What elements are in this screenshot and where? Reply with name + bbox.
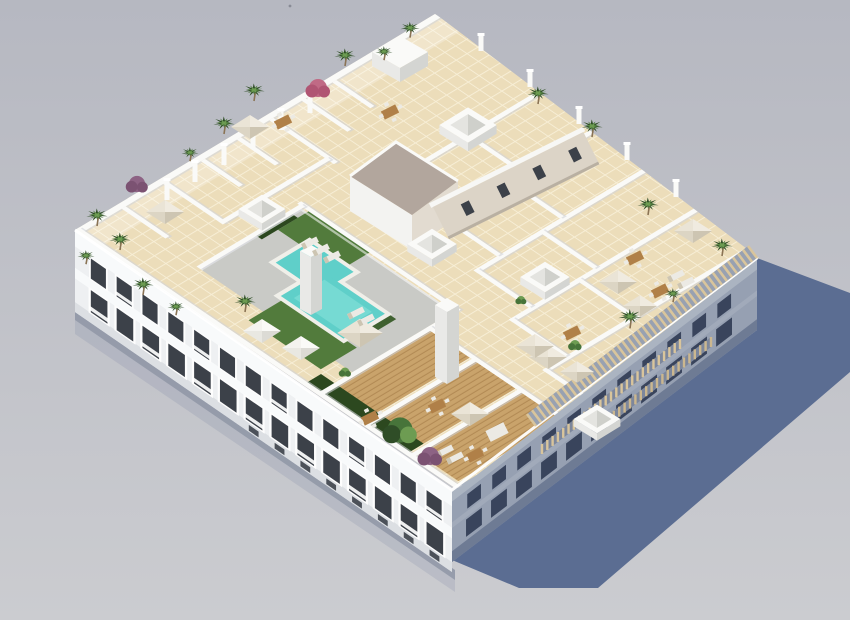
parapet-post-cap — [576, 106, 583, 109]
chimney-right-face — [447, 305, 459, 384]
render-stage — [0, 0, 850, 620]
parapet-post-cap — [478, 33, 485, 36]
bird-speck — [289, 5, 292, 8]
bush — [568, 343, 575, 350]
parapet-post-cap — [221, 143, 228, 146]
parapet-post-cap — [673, 179, 680, 182]
bush — [521, 299, 526, 304]
chimney-right-face — [311, 251, 322, 315]
parapet-post-cap — [192, 160, 199, 163]
parapet-post-cap — [164, 178, 171, 181]
parapet-post — [479, 35, 484, 51]
bush — [339, 370, 346, 377]
bush — [306, 85, 319, 98]
parapet-post — [577, 108, 582, 124]
parapet-post-cap — [624, 142, 631, 145]
bush — [400, 427, 417, 444]
parapet-post — [165, 180, 170, 200]
scene-render — [0, 0, 850, 620]
bush — [383, 425, 401, 443]
chimney-left-face — [300, 251, 311, 315]
parapet-post-cap — [527, 69, 534, 72]
parapet-post — [674, 181, 679, 197]
bush — [345, 371, 351, 377]
bush — [575, 344, 582, 351]
bush — [430, 454, 442, 466]
parapet-post — [193, 162, 198, 182]
parapet-post — [528, 71, 533, 87]
bush — [137, 182, 148, 193]
chimney-left-face — [435, 305, 447, 384]
bush — [418, 453, 431, 466]
parapet-post — [625, 144, 630, 160]
bush — [318, 86, 330, 98]
parapet-post-cap — [278, 108, 285, 111]
bush — [515, 298, 521, 304]
parapet-post — [222, 145, 227, 165]
bush — [126, 181, 138, 193]
